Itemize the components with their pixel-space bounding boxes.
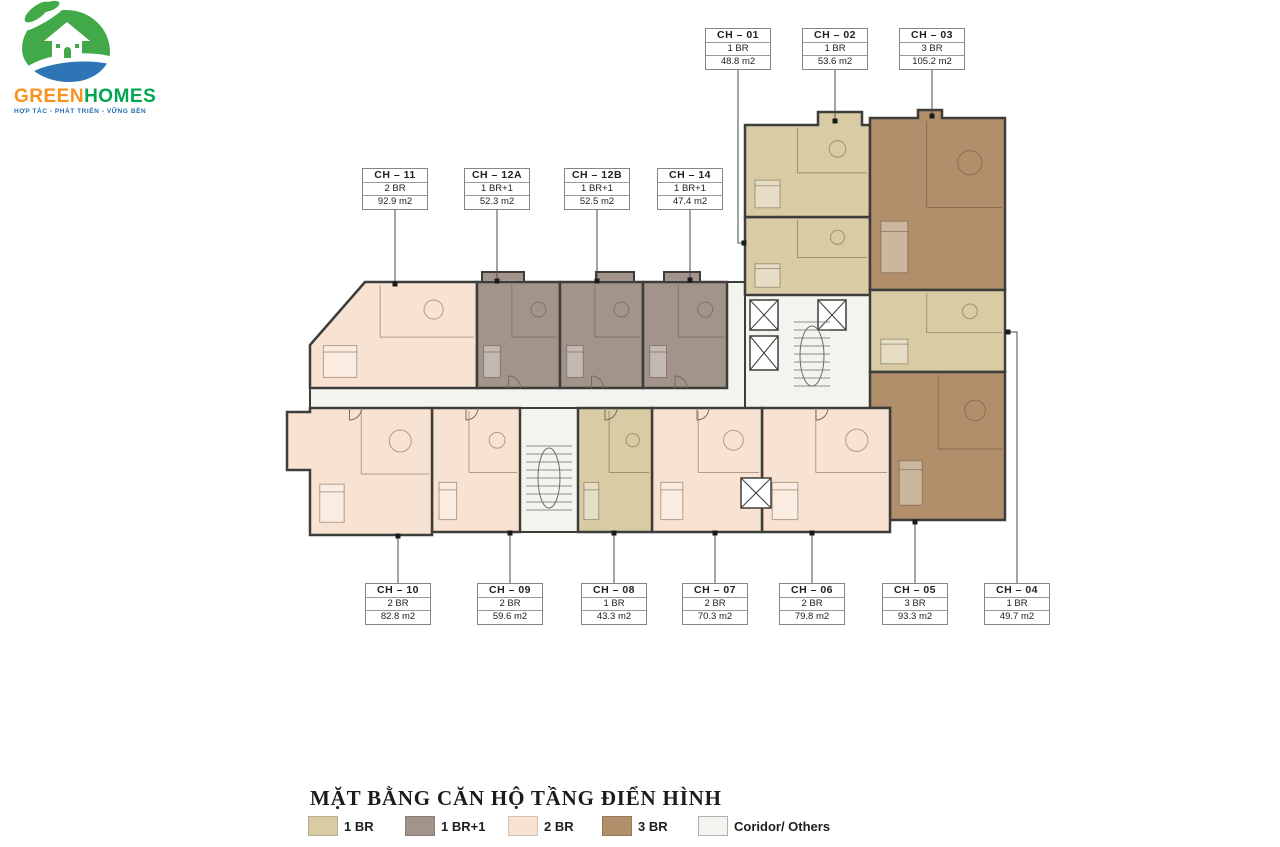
legend-swatch-1br1 xyxy=(405,816,435,836)
unit-bedrooms: 2 BR xyxy=(363,183,427,196)
legend-swatch-2br xyxy=(508,816,538,836)
leader-marker xyxy=(713,531,718,536)
unit-id: CH – 03 xyxy=(900,29,964,43)
legend-swatch-1br xyxy=(308,816,338,836)
unit-bedrooms: 1 BR xyxy=(985,598,1049,611)
unit-area: 79.8 m2 xyxy=(780,611,844,624)
unit-area: 52.3 m2 xyxy=(465,196,529,209)
unit-id: CH – 12A xyxy=(465,169,529,183)
unit-id: CH – 06 xyxy=(780,584,844,598)
leader-marker xyxy=(612,531,617,536)
balcony-tab xyxy=(596,272,634,282)
unit-label-CH–10: CH – 102 BR82.8 m2 xyxy=(365,583,431,625)
leader-line-CH–04 xyxy=(1009,332,1017,583)
page: GREENHOMES HỢP TÁC - PHÁT TRIỂN - VỮNG B… xyxy=(0,0,1280,847)
unit-area: 59.6 m2 xyxy=(478,611,542,624)
unit-label-CH–09: CH – 092 BR59.6 m2 xyxy=(477,583,543,625)
unit-bedrooms: 1 BR xyxy=(582,598,646,611)
unit-id: CH – 12B xyxy=(565,169,629,183)
unit-bedrooms: 3 BR xyxy=(900,43,964,56)
elevator-icon xyxy=(750,336,778,370)
leader-marker xyxy=(508,531,513,536)
unit-label-CH–01: CH – 011 BR48.8 m2 xyxy=(705,28,771,70)
unit-id: CH – 09 xyxy=(478,584,542,598)
unit-bedrooms: 2 BR xyxy=(683,598,747,611)
elevator-icon xyxy=(741,478,771,508)
legend-label-corridor: Coridor/ Others xyxy=(734,819,830,834)
plan-title: MẶT BẰNG CĂN HỘ TẦNG ĐIỂN HÌNH xyxy=(310,786,722,811)
unit-area: 49.7 m2 xyxy=(985,611,1049,624)
unit-bedrooms: 1 BR+1 xyxy=(565,183,629,196)
leader-marker xyxy=(930,114,935,119)
unit-area: 82.8 m2 xyxy=(366,611,430,624)
legend-swatch-corridor xyxy=(698,816,728,836)
leader-marker xyxy=(688,278,693,283)
unit-label-CH–08: CH – 081 BR43.3 m2 xyxy=(581,583,647,625)
leader-marker xyxy=(833,119,838,124)
unit-label-CH–04: CH – 041 BR49.7 m2 xyxy=(984,583,1050,625)
unit-id: CH – 02 xyxy=(803,29,867,43)
leader-marker xyxy=(742,241,747,246)
legend-label-1br1: 1 BR+1 xyxy=(441,819,485,834)
unit-id: CH – 14 xyxy=(658,169,722,183)
legend-label-1br: 1 BR xyxy=(344,819,374,834)
leader-marker xyxy=(393,282,398,287)
unit-bedrooms: 2 BR xyxy=(478,598,542,611)
unit-area: 53.6 m2 xyxy=(803,56,867,69)
unit-area: 43.3 m2 xyxy=(582,611,646,624)
unit-label-CH–02: CH – 021 BR53.6 m2 xyxy=(802,28,868,70)
floor-plan xyxy=(0,0,1280,847)
elevator-icon xyxy=(750,300,778,330)
unit-bedrooms: 2 BR xyxy=(780,598,844,611)
unit-bedrooms: 2 BR xyxy=(366,598,430,611)
unit-id: CH – 10 xyxy=(366,584,430,598)
unit-label-CH–05: CH – 053 BR93.3 m2 xyxy=(882,583,948,625)
unit-bedrooms: 3 BR xyxy=(883,598,947,611)
unit-label-CH–11: CH – 112 BR92.9 m2 xyxy=(362,168,428,210)
leader-marker xyxy=(810,531,815,536)
unit-area: 70.3 m2 xyxy=(683,611,747,624)
unit-bedrooms: 1 BR+1 xyxy=(465,183,529,196)
elevator-icon xyxy=(818,300,846,330)
unit-bedrooms: 1 BR xyxy=(803,43,867,56)
unit-id: CH – 05 xyxy=(883,584,947,598)
unit-bedrooms: 1 BR xyxy=(706,43,770,56)
unit-id: CH – 01 xyxy=(706,29,770,43)
unit-label-CH–12B: CH – 12B1 BR+152.5 m2 xyxy=(564,168,630,210)
unit-id: CH – 04 xyxy=(985,584,1049,598)
leader-marker xyxy=(913,520,918,525)
unit-label-CH–14: CH – 141 BR+147.4 m2 xyxy=(657,168,723,210)
balcony-tab xyxy=(482,272,524,282)
unit-id: CH – 07 xyxy=(683,584,747,598)
unit-label-CH–06: CH – 062 BR79.8 m2 xyxy=(779,583,845,625)
legend-label-2br: 2 BR xyxy=(544,819,574,834)
unit-bedrooms: 1 BR+1 xyxy=(658,183,722,196)
leader-marker xyxy=(1006,330,1011,335)
leader-marker xyxy=(396,534,401,539)
balcony-tab xyxy=(664,272,700,282)
leader-marker xyxy=(495,279,500,284)
leader-line-CH–01 xyxy=(738,67,743,243)
unit-label-CH–03: CH – 033 BR105.2 m2 xyxy=(899,28,965,70)
unit-area: 52.5 m2 xyxy=(565,196,629,209)
unit-area: 105.2 m2 xyxy=(900,56,964,69)
unit-area: 48.8 m2 xyxy=(706,56,770,69)
unit-area: 93.3 m2 xyxy=(883,611,947,624)
leader-marker xyxy=(595,279,600,284)
legend-swatch-3br xyxy=(602,816,632,836)
unit-id: CH – 08 xyxy=(582,584,646,598)
unit-shape-CH–10 xyxy=(287,408,432,535)
unit-id: CH – 11 xyxy=(363,169,427,183)
unit-area: 47.4 m2 xyxy=(658,196,722,209)
unit-area: 92.9 m2 xyxy=(363,196,427,209)
unit-label-CH–12A: CH – 12A1 BR+152.3 m2 xyxy=(464,168,530,210)
unit-label-CH–07: CH – 072 BR70.3 m2 xyxy=(682,583,748,625)
legend-label-3br: 3 BR xyxy=(638,819,668,834)
